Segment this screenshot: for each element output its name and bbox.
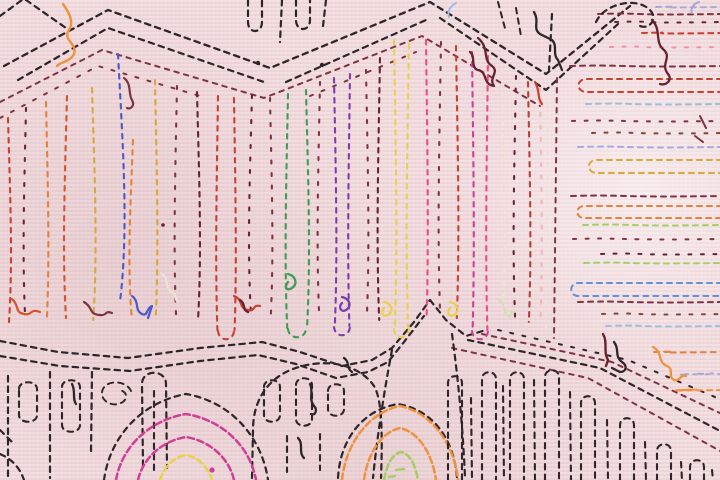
embroidery-svg [0,0,720,480]
embroidered-textile-photo [0,0,720,480]
fabric-shading-bottom [0,0,720,480]
